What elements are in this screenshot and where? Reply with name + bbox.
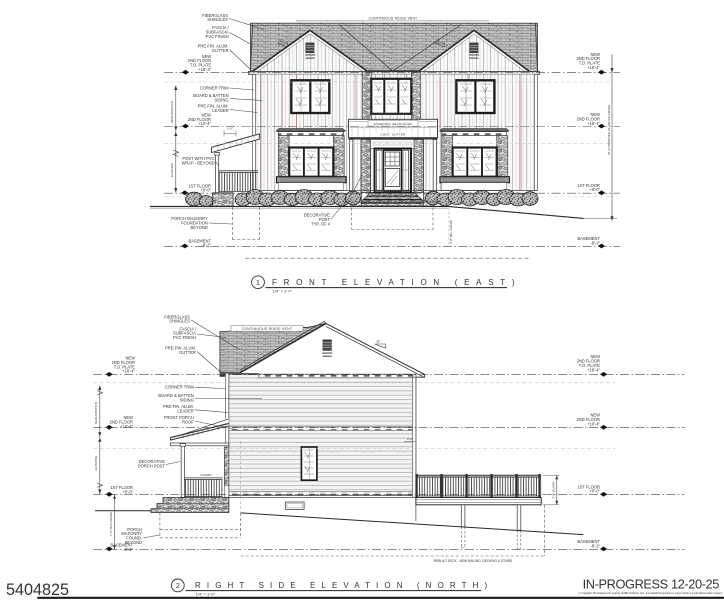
svg-text:5404825: 5404825 [6,581,69,599]
svg-text:+0'-0": +0'-0" [122,489,133,494]
svg-text:+10'-4": +10'-4" [587,121,600,126]
svg-text:+18'-4": +18'-4" [198,67,211,72]
svg-text:4'-0" BEL. GRADE: 4'-0" BEL. GRADE [449,220,453,244]
svg-text:-8'-2": -8'-2" [123,547,133,552]
svg-text:12: 12 [376,340,380,344]
svg-text:PVC FINISH: PVC FINISH [173,335,196,340]
svg-text:1'-0": 1'-0" [227,127,233,131]
svg-text:Ⓒ Copyright: This drawing is t: Ⓒ Copyright: This drawing is the propert… [579,591,723,595]
svg-text:2'-0": 2'-0" [407,437,413,441]
svg-text:SHINGLES: SHINGLES [207,17,228,22]
svg-text:+10'-4": +10'-4" [587,421,600,426]
svg-text:PORCH POST: PORCH POST [138,463,166,468]
svg-text:ROOF: ROOF [182,419,194,424]
svg-text:+0'-0": +0'-0" [200,188,211,193]
svg-text:+0'-0": +0'-0" [589,489,600,494]
svg-text:+10'-4": +10'-4" [198,121,211,126]
svg-text:FRONT ELEVATION (EAST): FRONT ELEVATION (EAST) [272,278,521,287]
svg-text:1/4" = 1'-0": 1/4" = 1'-0" [196,592,216,597]
svg-text:GUARD: GUARD [200,473,212,477]
svg-text:EXISTING: EXISTING [170,162,174,177]
svg-text:LEADER: LEADER [212,108,228,113]
svg-text:CONTINUOUS RIDGE VENT: CONTINUOUS RIDGE VENT [242,327,293,331]
svg-text:-8'-2": -8'-2" [590,241,600,246]
svg-text:-8'-2": -8'-2" [590,543,600,548]
svg-text:CONT. GUTTER: CONT. GUTTER [380,133,406,137]
svg-text:18'-0" MODIFIED HT ABOVE GRADE: 18'-0" MODIFIED HT ABOVE GRADE [607,105,611,155]
svg-text:PVC FINISH: PVC FINISH [206,34,229,39]
svg-text:CONTINUOUS RIDGE VENT: CONTINUOUS RIDGE VENT [369,17,418,21]
svg-text:WRAP - BEYOND: WRAP - BEYOND [181,160,214,165]
svg-text:GUTTER: GUTTER [179,350,196,355]
svg-text:+18'-4": +18'-4" [122,369,135,374]
svg-text:BEYOND: BEYOND [191,225,208,230]
svg-text:RIGHT SIDE ELEVATION (NORTH): RIGHT SIDE ELEVATION (NORTH) [195,581,493,590]
svg-text:-8'-2": -8'-2" [201,243,211,248]
svg-text:STANDING SEAM ROOF: STANDING SEAM ROOF [374,122,413,126]
svg-text:2: 2 [176,583,180,590]
svg-text:3'-0" GUARD: 3'-0" GUARD [552,482,556,499]
svg-text:REBUILT DECK - NEW RAILING, DE: REBUILT DECK - NEW RAILING, DECKING & ST… [434,559,512,563]
svg-text:NF DECID SHRUBS TO REMAIN - NF: NF DECID SHRUBS TO REMAIN - NF DECID SHR… [343,199,442,203]
svg-text:SIDING: SIDING [180,397,194,402]
svg-text:IN-PROGRESS 12-20-25: IN-PROGRESS 12-20-25 [583,576,720,591]
svg-text:CORNER TRIM: CORNER TRIM [165,385,194,390]
svg-text:12: 12 [436,39,440,43]
svg-text:+18'-4": +18'-4" [587,65,600,70]
svg-text:GUTTER: GUTTER [212,48,229,53]
svg-text:TYP. OF 4: TYP. OF 4 [311,221,331,226]
svg-text:1: 1 [256,280,260,287]
svg-text:+18'-4": +18'-4" [587,367,600,372]
svg-text:SHINGLES: SHINGLES [169,319,190,324]
svg-text:+10'-4": +10'-4" [120,424,133,429]
svg-text:NEW ADDITION: NEW ADDITION [94,402,98,424]
svg-text:EXISTING: EXISTING [94,455,98,470]
svg-text:+0'-0": +0'-0" [589,187,600,192]
svg-text:LEADER: LEADER [177,408,193,413]
svg-text:12: 12 [279,39,283,43]
svg-text:7'-0" MAX GRADE: 7'-0" MAX GRADE [109,512,113,536]
svg-text:NEW ADDITION: NEW ADDITION [170,101,174,123]
svg-text:1/4" = 1'-0": 1/4" = 1'-0" [273,289,293,294]
svg-text:SIDING: SIDING [214,97,228,102]
svg-text:CORNER TRIM: CORNER TRIM [200,85,229,90]
